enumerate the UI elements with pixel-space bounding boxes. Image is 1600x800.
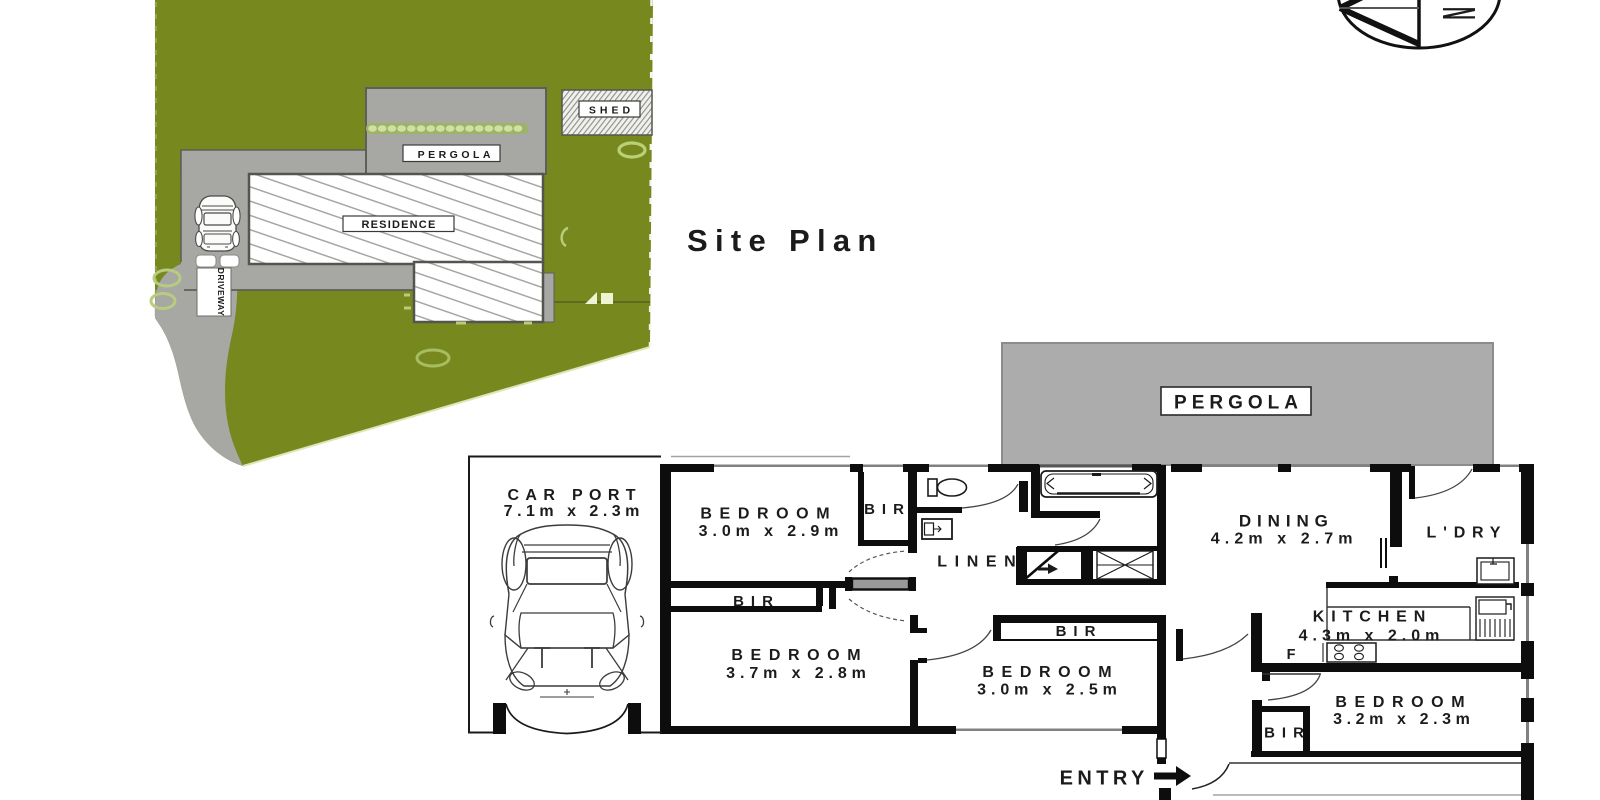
svg-text:ENTRY: ENTRY (1060, 768, 1149, 790)
svg-text:KITCHEN: KITCHEN (1313, 609, 1432, 626)
svg-text:CAR PORT: CAR PORT (508, 487, 642, 504)
svg-text:3.0m x 2.9m: 3.0m x 2.9m (699, 523, 844, 540)
svg-text:7.1m x 2.3m: 7.1m x 2.3m (504, 503, 644, 520)
svg-text:BIR: BIR (864, 501, 911, 518)
svg-text:BIR: BIR (1264, 725, 1311, 742)
svg-text:BEDROOM: BEDROOM (731, 647, 868, 664)
svg-text:BEDROOM: BEDROOM (982, 664, 1119, 681)
svg-text:N: N (1432, 7, 1484, 20)
svg-text:BIR: BIR (1056, 623, 1103, 640)
svg-text:PERGOLA: PERGOLA (418, 149, 494, 161)
svg-text:LINEN: LINEN (937, 554, 1023, 571)
svg-text:PERGOLA: PERGOLA (1174, 393, 1303, 414)
svg-text:F: F (1287, 647, 1296, 663)
svg-text:Site Plan: Site Plan (687, 223, 884, 258)
svg-text:BIR: BIR (733, 593, 780, 610)
svg-text:SHED: SHED (589, 105, 634, 117)
svg-text:3.2m x 2.3m: 3.2m x 2.3m (1333, 711, 1474, 728)
svg-text:3.0m x 2.5m: 3.0m x 2.5m (977, 682, 1122, 699)
svg-text:RESIDENCE: RESIDENCE (362, 219, 437, 231)
svg-text:BEDROOM: BEDROOM (1335, 694, 1472, 711)
svg-text:DRIVEWAY: DRIVEWAY (216, 268, 226, 317)
svg-text:BEDROOM: BEDROOM (700, 506, 837, 523)
svg-text:DINING: DINING (1239, 512, 1334, 531)
svg-text:4.3m x 2.0m: 4.3m x 2.0m (1299, 628, 1445, 645)
svg-text:4.2m x 2.7m: 4.2m x 2.7m (1211, 531, 1358, 548)
svg-text:L'DRY: L'DRY (1427, 525, 1508, 542)
svg-text:3.7m x 2.8m: 3.7m x 2.8m (726, 665, 871, 682)
